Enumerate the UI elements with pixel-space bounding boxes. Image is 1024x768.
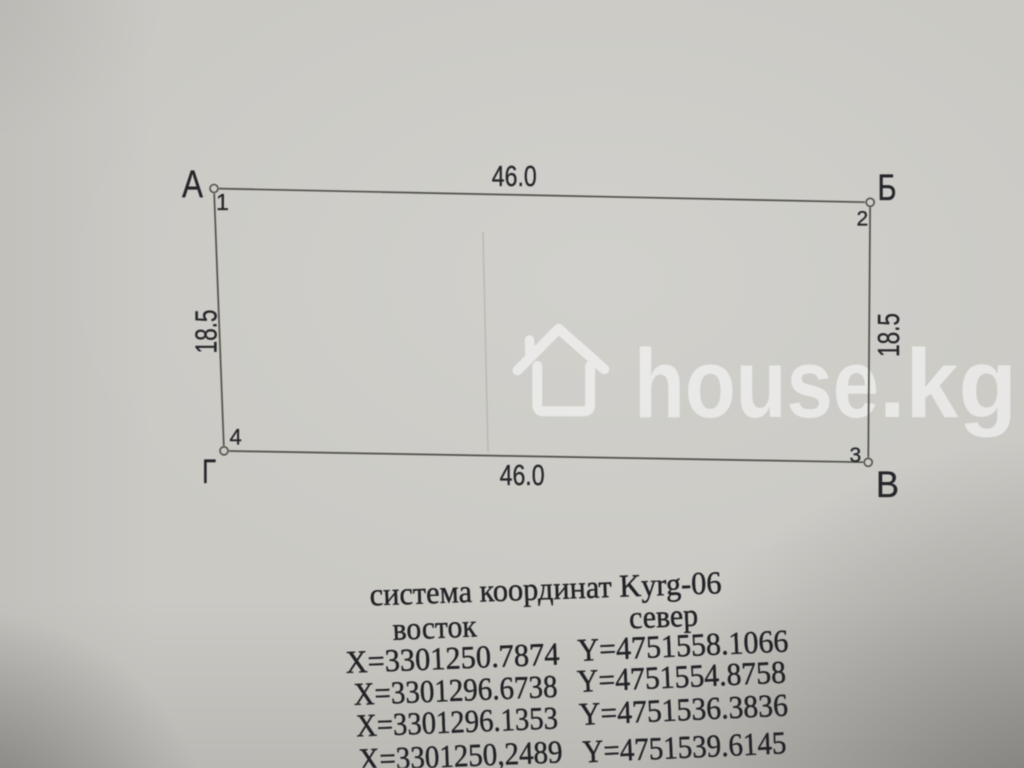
svg-text:В: В: [876, 464, 899, 505]
svg-text:18.5: 18.5: [189, 310, 224, 354]
svg-text:Б: Б: [878, 167, 897, 208]
svg-text:2: 2: [857, 208, 869, 231]
svg-text:46.0: 46.0: [492, 161, 537, 193]
svg-text:Y=4751539.6145: Y=4751539.6145: [582, 724, 787, 768]
svg-text:А: А: [182, 164, 203, 207]
svg-text:1: 1: [216, 189, 229, 215]
svg-text:46.0: 46.0: [500, 460, 545, 492]
svg-text:Г: Г: [202, 453, 216, 491]
svg-text:house: house: [634, 329, 879, 438]
svg-text:18.5: 18.5: [871, 313, 906, 357]
svg-text:3: 3: [850, 444, 862, 467]
svg-text:4: 4: [230, 425, 242, 450]
